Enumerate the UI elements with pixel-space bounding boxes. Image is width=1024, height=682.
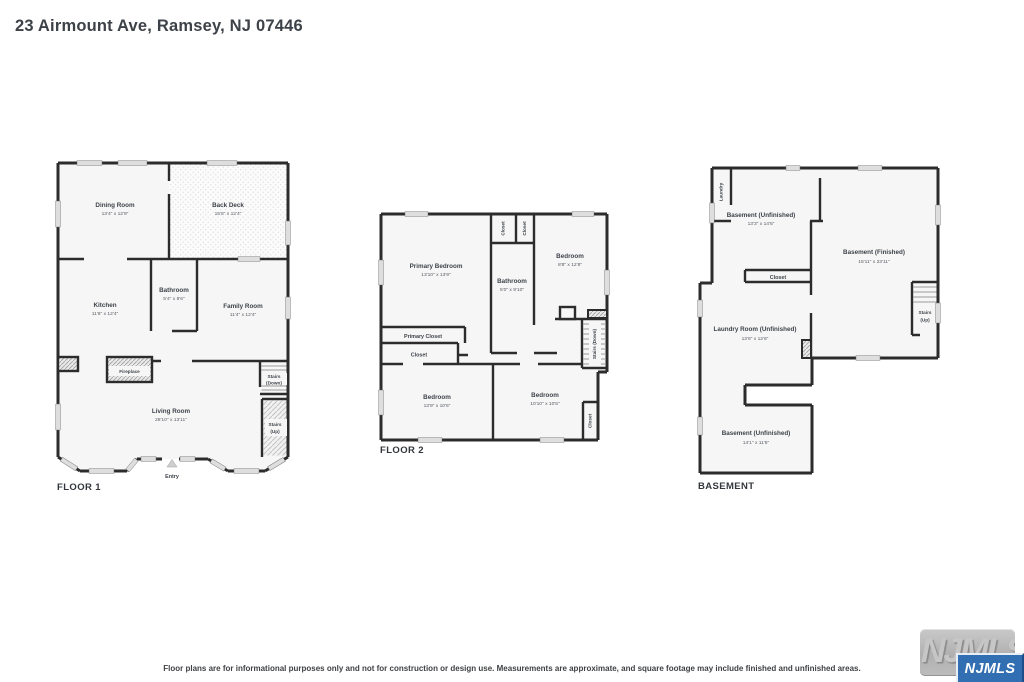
floor2-svg: Primary Bedroom 13'10" x 13'9" Closet Cl… [378, 210, 611, 446]
stairs-down2-label: Stairs (Down) [592, 328, 597, 359]
floor1-svg: Dining Room 13'4" x 12'9" Back Deck 15'5… [55, 159, 293, 485]
back-deck-dims: 15'5" x 12'4" [215, 211, 242, 217]
kitchen-dims: 11'6" x 12'4" [92, 311, 119, 317]
basement-stairs-up-1: Stairs [918, 310, 931, 315]
bedroom-right-dims: 8'8" x 12'8" [558, 262, 582, 268]
njmls-logo-badge: NJMLS [956, 653, 1024, 682]
basement-plan: Laundry Basement (Unfinished) 13'3" x 14… [696, 163, 944, 479]
bedroom-right-label: Bedroom [556, 253, 584, 260]
basement-stairs-up-2: (Up) [920, 318, 930, 323]
unfinished-top-dims: 13'3" x 14'5" [748, 221, 775, 227]
bedroom-bm-label: Bedroom [531, 392, 559, 399]
primary-bedroom-label: Primary Bedroom [410, 263, 463, 270]
closet-b-label: Closet [522, 221, 527, 236]
stairs-up-label-2: (Up) [270, 429, 280, 434]
bedroom-bl-label: Bedroom [423, 394, 451, 401]
bedroom-bl-dims: 13'9" x 10'5" [424, 403, 451, 409]
njmls-badge-text: NJMLS [965, 661, 1016, 677]
entry-marker [167, 460, 177, 468]
stairs-up-label-1: Stairs [268, 422, 281, 427]
entry-label: Entry [165, 474, 179, 480]
primary-closet-label: Primary Closet [404, 334, 442, 340]
laundry-room-dims: 13'6" x 12'6" [742, 336, 769, 342]
chase-hatch-box [588, 310, 607, 318]
chimney-box [58, 357, 78, 371]
closet-hall-label: Closet [411, 353, 428, 359]
floor2-title: FLOOR 2 [380, 445, 424, 456]
back-deck-texture [169, 163, 288, 259]
basement-title: BASEMENT [698, 481, 755, 492]
page-title: 23 Airmount Ave, Ramsey, NJ 07446 [15, 17, 303, 36]
back-deck-label: Back Deck [212, 202, 244, 209]
living-room-label: Living Room [152, 408, 191, 415]
unfinished-bottom-dims: 14'1" x 11'5" [743, 440, 770, 446]
floor1-plan: Dining Room 13'4" x 12'9" Back Deck 15'5… [55, 159, 293, 485]
unfinished-top-label: Basement (Unfinished) [727, 212, 796, 219]
floor2-plan: Primary Bedroom 13'10" x 13'9" Closet Cl… [378, 210, 611, 446]
closet-a-label: Closet [501, 221, 506, 236]
unfinished-bottom-label: Basement (Unfinished) [722, 430, 791, 437]
basement-svg: Laundry Basement (Unfinished) 13'3" x 14… [696, 163, 944, 479]
fireplace-label: Fireplace [119, 369, 140, 374]
bathroom2-label: Bathroom [497, 278, 527, 285]
finished-label: Basement (Finished) [843, 249, 905, 256]
family-room-label: Family Room [223, 303, 263, 310]
disclaimer-text: Floor plans are for informational purpos… [0, 664, 1024, 673]
stairs-down-label-2: (Down) [266, 381, 282, 386]
living-room-dims: 28'10" x 13'11" [155, 417, 187, 423]
linen-closet-box [560, 307, 575, 319]
closet-corner-label: Closet [588, 413, 593, 428]
chimney-hatch-box [802, 340, 811, 358]
finished-dims: 15'11" x 23'11" [858, 259, 890, 265]
family-room-dims: 11'4" x 12'4" [230, 312, 257, 318]
bathroom-dims: 5'4" x 8'6" [163, 296, 185, 302]
laundry-room-label: Laundry Room (Unfinished) [714, 326, 797, 333]
bedroom-bm-dims: 10'10" x 10'5" [530, 401, 560, 407]
dining-room-label: Dining Room [95, 202, 135, 209]
floor1-title: FLOOR 1 [57, 482, 101, 493]
kitchen-label: Kitchen [93, 302, 116, 309]
laundry-label: Laundry [719, 182, 724, 201]
primary-bedroom-dims: 13'10" x 13'9" [421, 272, 451, 278]
bathroom2-dims: 5'0" x 9'10" [500, 287, 524, 293]
dining-room-dims: 13'4" x 12'9" [102, 211, 129, 217]
bathroom-label: Bathroom [159, 287, 189, 294]
basement-closet-label: Closet [770, 275, 787, 281]
stairs-down-label-1: Stairs [267, 374, 280, 379]
floorplan-sheet: 23 Airmount Ave, Ramsey, NJ 07446 [0, 0, 1024, 682]
